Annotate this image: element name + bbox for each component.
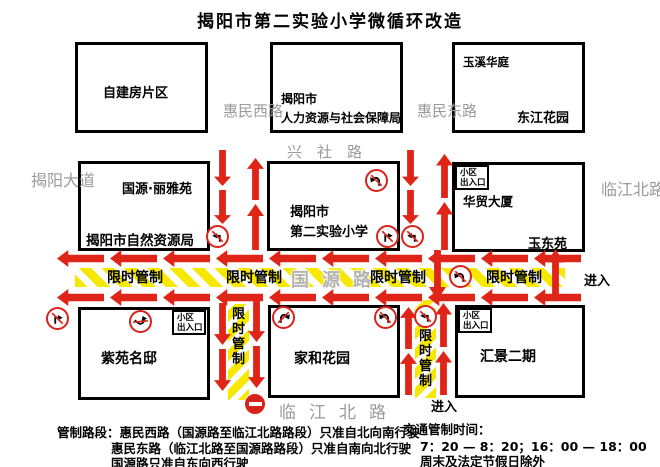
traffic-arrow-down xyxy=(402,190,419,224)
time-control-label: 限时管制 xyxy=(107,269,163,287)
gate-line2: 出入口 xyxy=(460,178,487,188)
traffic-arrow-left xyxy=(163,250,210,267)
block-label: 自建房片区 xyxy=(103,82,168,101)
schedule-exception: 周末及法定节假日除外 xyxy=(420,451,545,467)
block-label: 玉溪华庭 xyxy=(463,56,477,68)
traffic-arrow-left xyxy=(110,250,157,267)
traffic-arrow-left xyxy=(481,250,528,267)
street-huimin-west: 惠民西路 xyxy=(223,99,241,124)
traffic-arrow-up xyxy=(247,204,264,250)
no-right-turn-sign xyxy=(46,307,69,330)
control-note-line3: 国源路只准自东向西行驶 xyxy=(111,453,249,467)
no-u-turn-sign xyxy=(374,306,397,329)
block-label: 揭阳市 xyxy=(281,90,317,107)
no-u-turn-sign xyxy=(129,310,152,333)
time-control-label: 限时管制 xyxy=(486,269,542,287)
no-left-turn-sign xyxy=(414,305,437,328)
traffic-arrow-left xyxy=(269,250,316,267)
block-label: 华贸大厦 xyxy=(463,195,477,208)
traffic-arrow-down xyxy=(214,150,231,186)
traffic-arrow-down xyxy=(248,346,265,388)
gate-line2: 出入口 xyxy=(463,321,490,331)
no-left-turn-sign xyxy=(206,225,229,248)
gate-line1: 小区 xyxy=(463,311,490,321)
street-huimin-east: 惠民东路 xyxy=(417,99,435,124)
traffic-arrow-down xyxy=(214,190,231,224)
traffic-arrow-left xyxy=(216,250,263,267)
traffic-circulation-diagram: 揭阳市第二实验小学微循环改造 自建房片区 揭阳市 人力资源与社会保障局 玉溪华庭… xyxy=(0,0,660,467)
block-huamao: 小区 出入口 华贸大厦 玉东苑 xyxy=(452,162,585,252)
block-label: 家和花园 xyxy=(294,348,350,368)
time-control-label: 限时管制 xyxy=(226,269,282,287)
no-right-turn-sign xyxy=(376,225,399,248)
gate-line1: 小区 xyxy=(177,313,204,323)
street-linjiang-north-south: 临江北路 xyxy=(279,398,399,423)
block-label: 国源·丽雅苑 xyxy=(122,178,192,197)
no-u-turn-sign xyxy=(272,306,295,329)
traffic-arrow-up xyxy=(436,154,453,198)
block-liyayuan: 国源·丽雅苑 揭阳市自然资源局 xyxy=(78,161,210,251)
traffic-arrow-down xyxy=(248,300,265,342)
enter-label-south: 进入 xyxy=(431,396,457,415)
no-u-turn-sign xyxy=(365,169,388,192)
community-gate-label: 小区 出入口 xyxy=(172,310,206,335)
no-left-turn-sign xyxy=(401,225,424,248)
community-gate-label: 小区 出入口 xyxy=(458,308,492,333)
traffic-arrow-left xyxy=(110,289,157,306)
block-label: 东江花园 xyxy=(517,107,569,126)
time-control-label: 限时管制 xyxy=(417,329,434,389)
street-jieyang-avenue: 揭阳大道 xyxy=(31,168,51,194)
traffic-arrow-left xyxy=(57,250,104,267)
traffic-arrow-left xyxy=(481,289,528,306)
diagram-title: 揭阳市第二实验小学微循环改造 xyxy=(0,7,660,32)
traffic-arrow-left xyxy=(375,250,422,267)
traffic-arrow-up xyxy=(435,351,452,395)
gate-line1: 小区 xyxy=(460,168,487,178)
community-gate-label: 小区 出入口 xyxy=(455,165,489,190)
enter-label-east: 进入 xyxy=(584,270,610,289)
block-label: 第二实验小学 xyxy=(290,221,368,240)
block-label: 玉东苑 xyxy=(528,233,567,252)
street-linjiang-north-east: 临江北路 xyxy=(601,177,621,203)
block-zijianfang: 自建房片区 xyxy=(75,42,208,133)
block-label: 汇景二期 xyxy=(480,346,536,366)
no-entry-sign xyxy=(244,393,266,415)
traffic-arrow-left xyxy=(163,289,210,306)
traffic-arrow-up xyxy=(436,202,453,250)
block-label: 揭阳市自然资源局 xyxy=(86,229,194,249)
street-xingshe: 兴社路 xyxy=(287,141,377,162)
traffic-arrow-up xyxy=(435,303,452,347)
traffic-arrow-down xyxy=(402,150,419,186)
time-control-label: 限时管制 xyxy=(370,269,426,287)
block-renshe-bureau: 揭阳市 人力资源与社会保障局 xyxy=(270,42,403,133)
traffic-arrow-left xyxy=(57,289,104,306)
block-label: 揭阳市 xyxy=(290,201,329,220)
traffic-arrow-up xyxy=(247,158,264,200)
time-control-label: 限时管制 xyxy=(230,307,247,367)
no-u-turn-sign xyxy=(449,265,472,288)
block-label: 紫苑名邸 xyxy=(101,348,157,368)
block-label: 人力资源与社会保障局 xyxy=(281,109,401,126)
gate-line2: 出入口 xyxy=(177,323,204,333)
traffic-arrow-left xyxy=(322,250,369,267)
block-huijing: 小区 出入口 汇景二期 xyxy=(455,305,585,398)
